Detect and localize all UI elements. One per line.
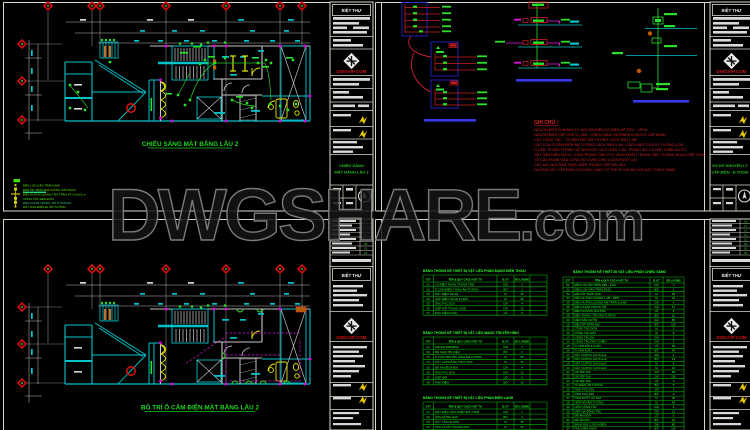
svg-text:(Ở CÁC ĐOẠN VỮA CỨNG SỬ DỤNG Ố: (Ở CÁC ĐOẠN VỮA CỨNG SỬ DỤNG ỐNG LUỒN RU… [535,157,637,162]
svg-text:Đ.V.T: Đ.V.T [502,340,509,344]
svg-text:CÔNG TẮC ĐƠN: CÔNG TẮC ĐƠN [575,326,598,331]
svg-text:HỘP CÔNG TẮC: HỘP CÔNG TẮC [575,404,597,409]
svg-text:ĐÈN ỐP TRẦN BAN CÔNG SÂN PHƠI: ĐÈN ỐP TRẦN BAN CÔNG SÂN PHƠI [23,187,76,192]
svg-text:ĐÈN HUỲNH QUANG ÂM TRẦN 3x14W: ĐÈN HUỲNH QUANG ÂM TRẦN 3x14W [575,300,627,305]
svg-text:BẢNG THỐNG KÊ THIẾT BỊ VẬT: BẢNG THỐNG KÊ THIẾT BỊ VẬT LIỆU PHẦN MẠN… [423,268,526,273]
svg-text:12: 12 [566,331,570,335]
svg-text:SƠ ĐỒ NGUYÊN LÝ: SƠ ĐỒ NGUYÊN LÝ [712,163,748,168]
svg-text:CÁI: CÁI [503,410,508,414]
svg-text:20: 20 [566,366,570,370]
svg-text:CB TÉP 20A: CB TÉP 20A [575,374,591,379]
svg-text:40: 40 [672,348,676,352]
svg-text:ỐNG PVC D20: ỐNG PVC D20 [575,391,595,396]
svg-text:- CÁC LOẠI Ổ CẮM ĐIỆN ÂM TƯỜN: - CÁC LOẠI Ổ CẮM ĐIỆN ÂM TƯỜNG CÁCH SÀN … [532,142,683,147]
svg-text:CÁI: CÁI [654,409,659,413]
svg-text:STT: STT [426,278,431,282]
svg-text:40: 40 [520,297,524,301]
svg-text:Đ.V.T: Đ.V.T [502,278,509,282]
svg-text:24: 24 [566,383,570,387]
svg-text:ĐẾ ÂM ĐƠN: ĐẾ ÂM ĐƠN [575,413,592,418]
svg-text:CÁI: CÁI [503,302,508,306]
svg-text:CÔNG TẮC ĐÔI: CÔNG TẮC ĐÔI [575,330,596,335]
svg-text:DÂY ĐIỆN THOẠI: DÂY ĐIỆN THOẠI [435,291,458,296]
svg-text:02: 02 [566,288,570,292]
svg-text:ĐÈN TRANG TRÍ GẮN TƯỜNG: ĐÈN TRANG TRÍ GẮN TƯỜNG [575,313,617,318]
svg-text:ỐNG NƯỚC NGƯNG D21: ỐNG NƯỚC NGƯNG D21 [435,424,470,429]
svg-text:DÂY CÁP ĐỒNG TRỤC RG6: DÂY CÁP ĐỒNG TRỤC RG6 [435,359,473,364]
svg-text:29: 29 [566,405,570,409]
svg-text:16: 16 [566,348,570,352]
svg-text:22: 22 [566,375,570,379]
svg-text:ĐÈN GƯƠNG SOI 25W: ĐÈN GƯƠNG SOI 25W [575,308,606,313]
svg-text:ỐNG PVC D20: ỐNG PVC D20 [435,301,455,306]
svg-text:10: 10 [672,366,676,370]
svg-text:HỘP NỐI TRUNG GIAN: HỘP NỐI TRUNG GIAN [435,305,466,310]
svg-text:27: 27 [566,396,570,400]
svg-text:- NGUỒN ĐIỆN CẤP CHO Ổ CẮM , C: - NGUỒN ĐIỆN CẤP CHO Ổ CẮM , CHIẾU SÁNG … [532,132,666,137]
svg-text:CÁI: CÁI [654,405,659,409]
svg-text:30: 30 [566,409,570,413]
svg-text:DÂY CU/PVC 2x4.0mm2: DÂY CU/PVC 2x4.0mm2 [575,361,607,365]
svg-text:03: 03 [427,292,431,296]
svg-text:12: 12 [672,409,676,413]
svg-text:35: 35 [672,396,676,400]
svg-text:CB TÉP 10A: CB TÉP 10A [575,369,591,374]
svg-text:ỐNG RUỘT GÀ D16: ỐNG RUỘT GÀ D16 [575,395,602,400]
svg-text:ĐÈN LON ÂM TRẦN D90 - 12W: ĐÈN LON ÂM TRẦN D90 - 12W [575,282,616,287]
svg-text:CÔNG TẮC BA: CÔNG TẮC BA [575,334,595,339]
svg-text:HỘP NỐI ÂM TƯỜNG: HỘP NỐI ÂM TƯỜNG [575,400,605,405]
svg-text:CB TÉP 30A: CB TÉP 30A [575,378,591,383]
svg-text:CÁI: CÁI [503,365,508,369]
svg-text:02: 02 [427,287,431,291]
svg-text:Ổ CẮM ĐÔI 3 CHẤU: Ổ CẮM ĐÔI 3 CHẤU [575,343,602,348]
svg-text:CÔNG TẮC ĐẢO CHIỀU: CÔNG TẮC ĐẢO CHIỀU [575,339,607,344]
svg-text:07: 07 [566,309,570,313]
svg-text:CÁI: CÁI [654,422,659,426]
svg-text:MẶT NẠ CÔNG TẮC: MẶT NẠ CÔNG TẮC [575,408,602,413]
svg-text:12: 12 [520,370,524,374]
svg-text:08: 08 [427,381,431,385]
svg-text:TỦ ĐIỆN THOẠI TRUNG TÂM: TỦ ĐIỆN THOẠI TRUNG TÂM [435,282,475,287]
svg-text:PHỤ KIỆN KHÁC: PHỤ KIỆN KHÁC [435,310,458,315]
svg-text:07: 07 [427,376,431,380]
svg-text:01: 01 [427,345,431,349]
svg-text:05: 05 [427,365,431,369]
svg-text:Đ.V.T: Đ.V.T [653,279,660,283]
svg-text:35: 35 [520,420,524,424]
svg-text:06: 06 [427,370,431,374]
svg-text:DÂY CẤP NGUỒN: DÂY CẤP NGUỒN [435,419,459,424]
svg-text:02: 02 [427,350,431,354]
svg-text:ĐẾ ÂM ĐÔI: ĐẾ ÂM ĐÔI [575,417,590,422]
svg-text:ỐNG PVC D20: ỐNG PVC D20 [435,369,455,374]
svg-text:05: 05 [427,302,431,306]
svg-text:TỦ ĐIỆN ÂM TƯỜNG: TỦ ĐIỆN ÂM TƯỜNG [575,382,604,387]
svg-text:40: 40 [520,360,524,364]
svg-text:ĐÈN CHÙM TRANG TRÍ: ĐÈN CHÙM TRANG TRÍ [575,304,607,309]
svg-text:CÁI: CÁI [503,306,508,310]
svg-text:CẤP ĐIỆN - Đ.THOẠI: CẤP ĐIỆN - Đ.THOẠI [711,170,748,175]
svg-text:06: 06 [427,306,431,310]
svg-text:07: 07 [427,311,431,315]
svg-text:Đ.V.T: Đ.V.T [502,405,509,409]
svg-text:40: 40 [520,425,524,429]
svg-text:CÁI: CÁI [503,345,508,349]
svg-text:STT: STT [426,340,431,344]
svg-text:ĐÈN HUỲNH QUANG 1.2M - 36W: ĐÈN HUỲNH QUANG 1.2M - 36W [575,295,620,300]
svg-text:04: 04 [566,296,570,300]
svg-text:- ĐƯỜNG DÂY CẤP ĐIỆN CHO MÁY L: - ĐƯỜNG DÂY CẤP ĐIỆN CHO MÁY LẠNH CÓ THỂ… [532,167,675,172]
svg-text:CÁI: CÁI [503,283,508,287]
svg-text:01: 01 [427,283,431,287]
svg-text:120: 120 [671,375,676,379]
svg-text:BẢNG THỐNG KÊ THIẾT BỊ VẬT L: BẢNG THỐNG KÊ THIẾT BỊ VẬT LIỆU PHẦN ĐIỆ… [423,395,514,400]
svg-text:MẶT BẰNG LẦU 2: MẶT BẰNG LẦU 2 [334,170,369,175]
svg-text:- CÁC CÔNG TẮC , TỦ ĐIỆN ĐẶT: - CÁC CÔNG TẮC , TỦ ĐIỆN ĐẶT ÂM TƯỜNG CÁ… [532,137,637,142]
svg-text:- Ổ CẮM TRONG PHÒNG VỆ SINH ĐẶ: - Ổ CẮM TRONG PHÒNG VỆ SINH ĐẶT CÁCH SÀN… [532,147,687,152]
svg-text:BĂNG KEO CÁCH ĐIỆN: BĂNG KEO CÁCH ĐIỆN [575,421,607,426]
svg-text:12: 12 [520,306,524,310]
svg-text:04: 04 [427,425,431,429]
svg-text:Ổ CẮM ĐIỆN THOẠI ÂM TƯỜNG: Ổ CẮM ĐIỆN THOẠI ÂM TƯỜNG [435,286,479,291]
svg-text:CÁI: CÁI [503,370,508,374]
svg-text:03: 03 [427,420,431,424]
svg-text:BỘ KHUẾCH ĐẠI: BỘ KHUẾCH ĐẠI [435,364,458,369]
svg-text:ANTEN PARABOL: ANTEN PARABOL [435,345,459,349]
svg-text:HỘP NỐI: HỘP NỐI [435,375,447,380]
svg-text:80: 80 [672,318,676,322]
svg-text:09: 09 [566,318,570,322]
svg-text:CÁI: CÁI [654,375,659,379]
svg-text:35: 35 [520,292,524,296]
svg-text:10: 10 [566,322,570,326]
svg-text:35: 35 [520,355,524,359]
svg-text:Ổ CẮM TRUYỀN HÌNH ÂM TƯỜNG: Ổ CẮM TRUYỀN HÌNH ÂM TƯỜNG [435,354,483,359]
svg-text:03: 03 [427,355,431,359]
svg-text:ĐÈN ỐP TRẦN WC: ĐÈN ỐP TRẦN WC [575,321,600,326]
svg-text:ĐÈN SÂN VƯỜN: ĐÈN SÂN VƯỜN [575,317,598,322]
svg-text:- DÂY DẪN ĐIỆN ĐƯỢC LUỒN TRONG: - DÂY DẪN ĐIỆN ĐƯỢC LUỒN TRONG ỐNG PVC V… [532,152,706,157]
svg-text:01: 01 [427,410,431,414]
svg-text:ĐÈN ỐP TRẦN 22W: ĐÈN ỐP TRẦN 22W [575,291,602,296]
svg-text:ỐNG ĐỒNG GAS: ỐNG ĐỒNG GAS [435,414,458,419]
svg-text:MÁY ĐIỀU HÒA NHIỆT ĐỘ 1.5HP: MÁY ĐIỀU HÒA NHIỆT ĐỘ 1.5HP [435,409,479,414]
svg-text:10: 10 [520,381,524,385]
svg-text:DÂY DẪN ĐIỆN ĐI ÂM TƯỜNG: DÂY DẪN ĐIỆN ĐI ÂM TƯỜNG [23,204,66,209]
svg-text:04: 04 [427,297,431,301]
svg-text:- CÁC MỐI NỐI PHẢI THỰC HIỆN T: - CÁC MỐI NỐI PHẢI THỰC HIỆN TRONG HỘP N… [532,162,626,167]
svg-text:ỐNG PVC D16: ỐNG PVC D16 [575,387,595,392]
svg-text:33: 33 [566,422,570,426]
svg-text:ĐÈN LON GẮN TRẦN D120: ĐÈN LON GẮN TRẦN D120 [575,287,612,292]
svg-text:02: 02 [427,415,431,419]
svg-text:DÂY CU/PVC 1x6.0mm2: DÂY CU/PVC 1x6.0mm2 [575,366,607,370]
svg-text:CÁI: CÁI [654,340,659,344]
svg-text:- NGUỒN ĐIỆN ĐI NGẦM TỪ NGUỒN: - NGUỒN ĐIỆN ĐI NGẦM TỪ NGUỒN ĐIỆN CÓ ĐI… [532,127,648,132]
svg-text:STT: STT [565,279,570,283]
svg-text:Ổ CẮM ĐƠN: Ổ CẮM ĐƠN [575,347,592,352]
svg-text:BỘ CHIA TÍN HIỆU: BỘ CHIA TÍN HIỆU [435,349,460,354]
svg-text:40: 40 [672,296,676,300]
svg-text:04: 04 [427,360,431,364]
svg-text:80: 80 [672,422,676,426]
svg-text:14: 14 [566,340,570,344]
svg-text:19: 19 [566,361,570,365]
svg-text:CÁI: CÁI [654,318,659,322]
svg-text:120: 120 [671,322,676,326]
svg-text:CÁP ĐIỆN THOẠI 10 ĐÔI: CÁP ĐIỆN THOẠI 10 ĐÔI [435,296,468,301]
svg-text:GHI CHÚ :: GHI CHÚ : [534,119,559,126]
svg-text:STT: STT [426,405,431,409]
svg-text:PHỤ KIỆN: PHỤ KIỆN [435,380,449,385]
svg-text:PHỤ KIỆN KHÁC: PHỤ KIỆN KHÁC [575,426,598,430]
svg-text:BẢNG THỐNG KÊ THIẾT BỊ VẬT LI: BẢNG THỐNG KÊ THIẾT BỊ VẬT LIỆU PHẦN CHI… [573,269,666,274]
svg-text:BẢNG THỐNG KÊ THIẾT BỊ VẬT L: BẢNG THỐNG KÊ THIẾT BỊ VẬT LIỆU MẠNG TRU… [423,330,519,335]
svg-text:CHIẾU SÁNG: CHIẾU SÁNG [339,163,364,168]
